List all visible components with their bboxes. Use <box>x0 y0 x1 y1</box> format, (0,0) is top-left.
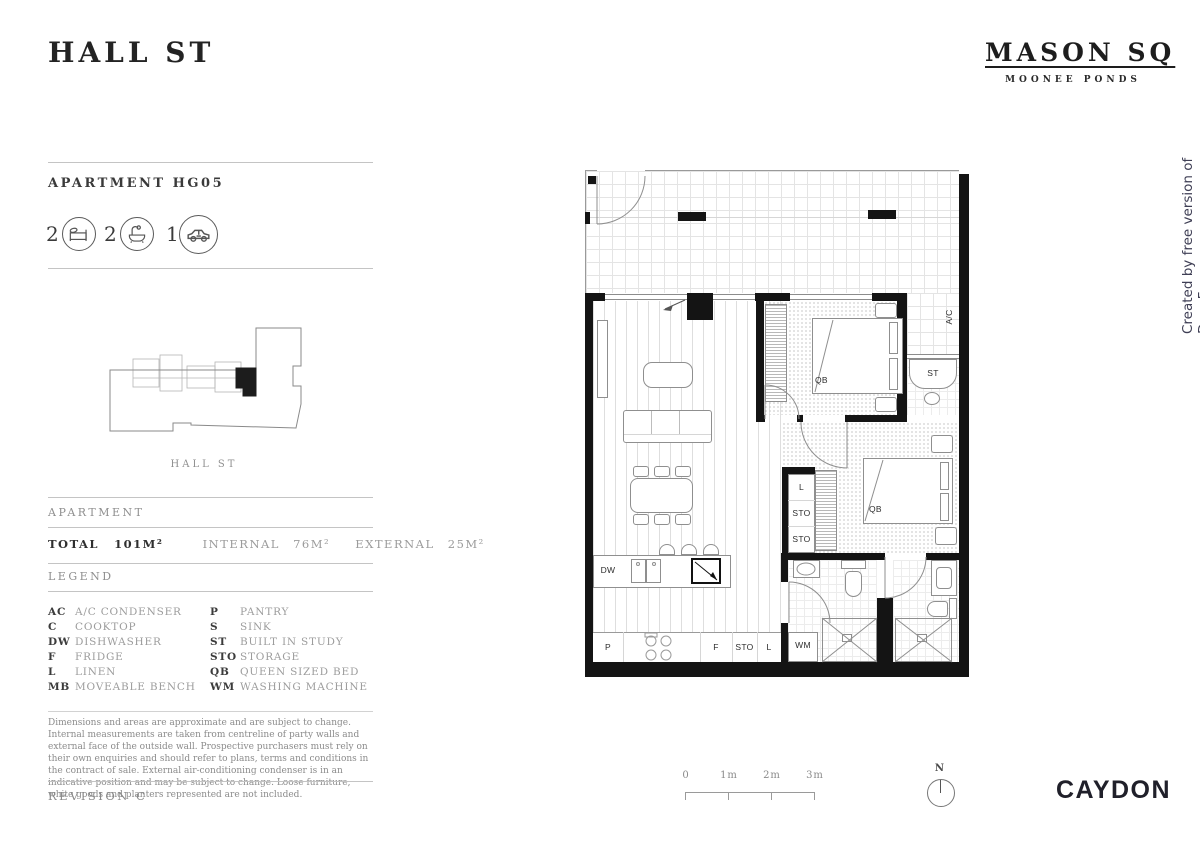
apartment-section-label: APARTMENT <box>48 506 144 519</box>
sofa <box>623 410 712 443</box>
carpark-count: 1 <box>166 222 179 246</box>
wall <box>756 415 765 422</box>
divider <box>48 268 373 269</box>
divider <box>48 711 373 712</box>
wall <box>585 293 593 677</box>
wall <box>755 293 790 301</box>
brand-name: MASON SQ <box>985 38 1161 67</box>
building-key-plan <box>103 326 315 438</box>
legend-item: MBMOVEABLE BENCH <box>48 680 208 695</box>
bedside-table <box>935 527 957 545</box>
storage-closet-label: STO <box>788 508 815 518</box>
kitchen-stool <box>659 544 675 555</box>
divider <box>48 162 373 163</box>
ac-label: A/C <box>944 297 954 337</box>
basin-bowl <box>936 567 952 589</box>
external-label: EXTERNAL <box>355 537 434 551</box>
sink-bowl <box>631 559 646 583</box>
legend-item: QBQUEEN SIZED BED <box>210 665 380 680</box>
legend-item: SSINK <box>210 620 380 635</box>
wall <box>781 560 788 582</box>
wall <box>845 415 907 422</box>
car-icon <box>179 215 218 254</box>
page-title: HALL ST <box>48 36 214 69</box>
internal-label: INTERNAL <box>203 537 280 551</box>
legend-item: WMWASHING MACHINE <box>210 680 380 695</box>
divider <box>48 497 373 498</box>
bed-icon <box>62 217 96 251</box>
study-label: ST <box>915 368 951 378</box>
brand-logo: MASON SQ MOONEE PONDS <box>985 38 1161 85</box>
bath-icon <box>120 217 154 251</box>
dining-chair <box>654 514 670 525</box>
sink-bowl <box>646 559 661 583</box>
linen-label: L <box>757 642 781 652</box>
moveable-bench <box>691 558 721 584</box>
wall <box>797 415 803 422</box>
revision-label: REVISION C <box>48 789 147 803</box>
wardrobe <box>765 304 787 402</box>
wall <box>872 293 907 301</box>
window <box>713 294 755 300</box>
dining-table <box>630 478 693 513</box>
wall <box>959 174 969 677</box>
kitchen-stool <box>681 544 697 555</box>
north-arrow: N <box>920 763 960 813</box>
legend-item: ACA/C CONDENSER <box>48 605 208 620</box>
basin <box>793 560 820 578</box>
closet-divider <box>788 526 815 527</box>
linen-closet-label: L <box>788 482 815 492</box>
window <box>605 294 687 300</box>
scale-tick <box>771 792 772 800</box>
scale-tick-label: 1m <box>720 770 738 781</box>
divider <box>48 563 373 564</box>
fridge-label: F <box>700 642 732 652</box>
wall <box>926 553 959 560</box>
toilet-cistern <box>949 598 957 619</box>
divider <box>48 591 373 592</box>
floorplan-brochure-page: HALL ST MASON SQ MOONEE PONDS Created by… <box>0 0 1200 849</box>
legend-right-column: PPANTRY SSINK STBUILT IN STUDY STOSTORAG… <box>210 605 380 695</box>
legend-left-column: ACA/C CONDENSER CCOOKTOP DWDISHWASHER FF… <box>48 605 208 695</box>
bathroom-count: 2 <box>104 222 117 246</box>
external-value: 25M² <box>448 537 485 551</box>
key-plan-street-label: HALL ST <box>144 459 264 470</box>
legend-item: FFRIDGE <box>48 650 208 665</box>
dishwasher-label: DW <box>595 565 621 575</box>
area-summary: TOTAL 101M² INTERNAL 76M² EXTERNAL 25M² <box>48 537 378 551</box>
dining-chair <box>675 514 691 525</box>
legend-item: STOSTORAGE <box>210 650 380 665</box>
wall <box>585 293 605 301</box>
legend-item: STBUILT IN STUDY <box>210 635 380 650</box>
bedside-table <box>875 397 897 412</box>
wall <box>877 598 893 662</box>
north-circle <box>927 779 955 807</box>
storage-label: STO <box>732 642 757 652</box>
balcony-edge <box>645 170 959 171</box>
tv-unit <box>597 320 608 398</box>
legend-section-label: LEGEND <box>48 570 114 583</box>
counter-edge <box>593 632 781 633</box>
scale-tick <box>728 792 729 800</box>
wall <box>756 301 764 415</box>
scale-tick-label: 3m <box>806 770 824 781</box>
shower-mixer <box>917 634 927 642</box>
wall <box>782 467 815 474</box>
north-needle <box>940 780 941 793</box>
developer-logo: CAYDON <box>1056 776 1171 805</box>
scale-tick <box>685 792 686 800</box>
balcony-edge <box>585 170 586 293</box>
north-label: N <box>920 763 960 774</box>
sofa-cushion-line <box>679 411 680 434</box>
pantry-label: P <box>593 642 623 652</box>
floor-plan: DW P F STO L WM QB ST A/C L STO STO <box>585 170 970 677</box>
total-label: TOTAL <box>48 537 99 551</box>
legend-item: LLINEN <box>48 665 208 680</box>
toilet <box>927 601 948 617</box>
dining-chair <box>675 466 691 477</box>
dining-chair <box>633 466 649 477</box>
bedside-table <box>875 303 897 318</box>
pillow <box>889 322 898 354</box>
pillow <box>889 358 898 390</box>
queen-bed-label: QB <box>815 375 845 385</box>
scale-line <box>685 792 815 793</box>
wall <box>781 623 788 662</box>
divider <box>48 527 373 528</box>
closet-divider <box>788 500 815 501</box>
column <box>678 212 706 221</box>
balcony-slab-line <box>586 217 959 218</box>
scale-tick-label: 0 <box>682 770 689 781</box>
shower-mixer <box>842 634 852 642</box>
door-jamb <box>588 176 596 184</box>
desk-chair <box>924 392 940 405</box>
legend-item: PPANTRY <box>210 605 380 620</box>
brand-location: MOONEE PONDS <box>985 75 1161 85</box>
toilet <box>845 571 862 597</box>
bedside-table <box>931 435 953 453</box>
wall <box>585 212 590 224</box>
scale-tick-label: 2m <box>763 770 781 781</box>
balcony-edge <box>585 170 597 171</box>
docufreezer-watermark: Created by free version of DocuFreezer <box>1180 99 1200 334</box>
wardrobe <box>815 470 837 551</box>
wall <box>585 662 969 677</box>
scale-tick <box>814 792 815 800</box>
wall <box>781 553 885 560</box>
storage-closet-label: STO <box>788 534 815 544</box>
column <box>868 210 896 219</box>
sofa-back-line <box>624 434 711 435</box>
kitchen-stool <box>703 544 719 555</box>
washing-machine-label: WM <box>788 640 818 650</box>
internal-value: 76M² <box>293 537 330 551</box>
sofa-cushion-line <box>651 411 652 434</box>
dining-chair <box>654 466 670 477</box>
total-value: 101M² <box>114 537 163 551</box>
divider <box>48 781 373 782</box>
legend-item: DWDISHWASHER <box>48 635 208 650</box>
apartment-number-label: APARTMENT HG05 <box>48 176 224 191</box>
cabinet-line <box>623 632 624 662</box>
legend-item: CCOOKTOP <box>48 620 208 635</box>
coffee-table <box>643 362 693 388</box>
queen-bed-label: QB <box>869 504 899 514</box>
scale-bar: 0 1m 2m 3m <box>683 770 823 802</box>
window <box>790 294 872 300</box>
bedroom-count: 2 <box>46 222 59 246</box>
dining-chair <box>633 514 649 525</box>
pillow <box>940 493 949 521</box>
pillow <box>940 462 949 490</box>
balcony <box>586 171 959 293</box>
toilet-cistern <box>841 560 866 569</box>
column <box>687 293 713 320</box>
